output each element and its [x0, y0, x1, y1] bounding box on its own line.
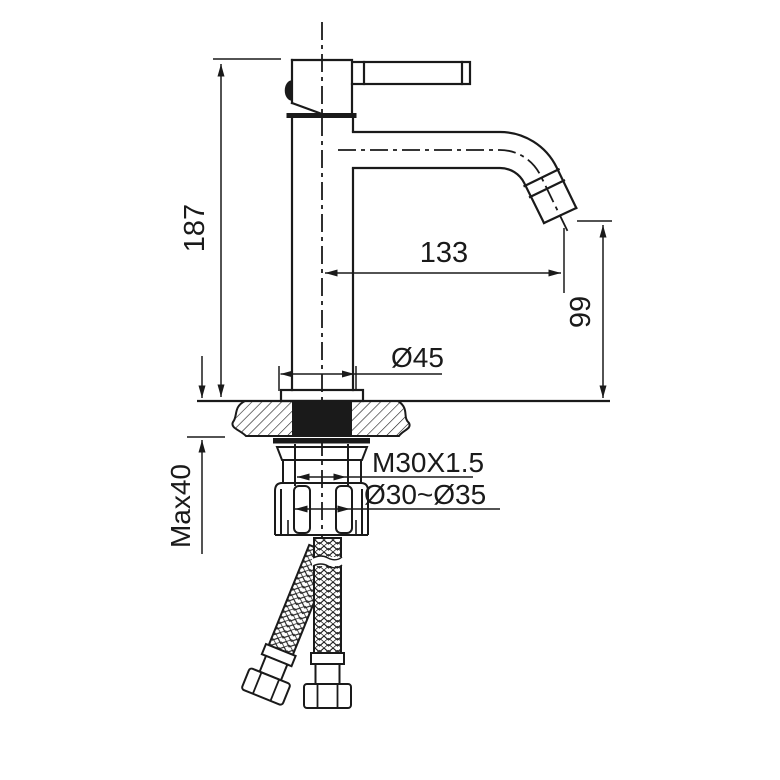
faucet-shank-section	[292, 401, 352, 436]
spout-inner-edge	[353, 168, 544, 223]
cap-chamfer-line	[292, 103, 322, 114]
hose-vertical-neck	[316, 664, 340, 684]
label-outlet-height: 99	[565, 296, 597, 328]
spout-outer-edge	[353, 132, 576, 208]
label-spout-reach: 133	[420, 237, 468, 269]
label-max-thickness: Max40	[165, 464, 196, 548]
spout-outlet-face	[544, 208, 576, 223]
cap-side-boss	[286, 81, 292, 100]
aerator-seam-2	[525, 169, 559, 186]
hose-vertical-hex-nut	[304, 684, 351, 708]
aerator-seam-1	[530, 181, 564, 198]
countertop-section	[197, 401, 610, 436]
label-thread-spec: M30X1.5	[372, 447, 484, 478]
label-hole-diameter: Ø30~Ø35	[364, 479, 486, 510]
handle-lever	[352, 62, 470, 84]
label-base-diameter: Ø45	[391, 342, 444, 373]
drawing-svg: 187 133 99 Ø45 M30X1.5 Ø30~Ø35 Max40	[0, 0, 780, 780]
hose-vertical-collar	[311, 653, 344, 664]
dimension-labels: 187 133 99 Ø45 M30X1.5 Ø30~Ø35 Max40	[165, 204, 597, 548]
label-overall-height: 187	[179, 204, 211, 252]
rubber-washer	[273, 438, 370, 444]
hose-vertical-braid	[314, 538, 341, 653]
spout-centerline	[338, 150, 568, 231]
faucet-technical-drawing: 187 133 99 Ø45 M30X1.5 Ø30~Ø35 Max40	[0, 0, 780, 780]
